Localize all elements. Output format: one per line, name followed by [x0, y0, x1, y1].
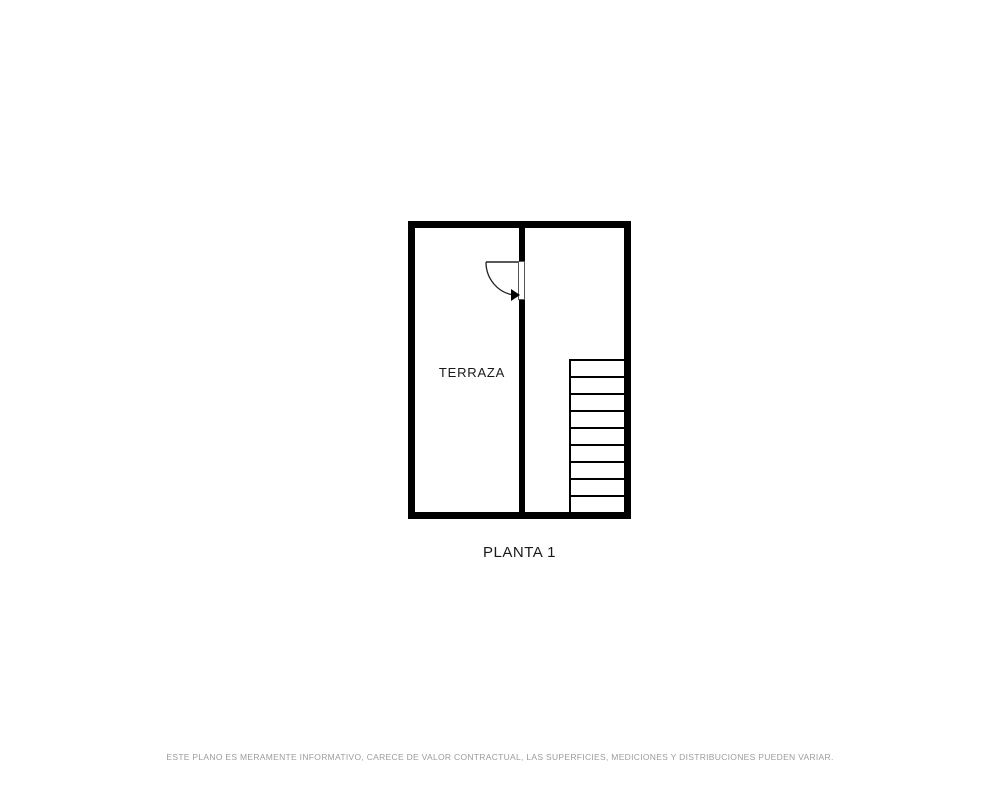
stair-step-line [571, 427, 624, 429]
stair-step-line [571, 410, 624, 412]
stair-step-line [571, 444, 624, 446]
floor-title: PLANTA 1 [408, 544, 631, 561]
stair-step-line [571, 495, 624, 497]
stair-step-line [571, 376, 624, 378]
disclaimer-text: ESTE PLANO ES MERAMENTE INFORMATIVO, CAR… [0, 752, 1000, 762]
stair-step-line [571, 478, 624, 480]
stair-step-line [571, 393, 624, 395]
floorplan-page: TERRAZA PLANTA 1 ESTE PLANO ES MERAMENTE… [0, 0, 1000, 800]
floorplan-outline: TERRAZA [408, 221, 631, 519]
stair-step-line [571, 461, 624, 463]
stairs [569, 359, 624, 512]
room-label-terraza: TERRAZA [427, 365, 517, 380]
floorplan-interior: TERRAZA [415, 228, 624, 512]
